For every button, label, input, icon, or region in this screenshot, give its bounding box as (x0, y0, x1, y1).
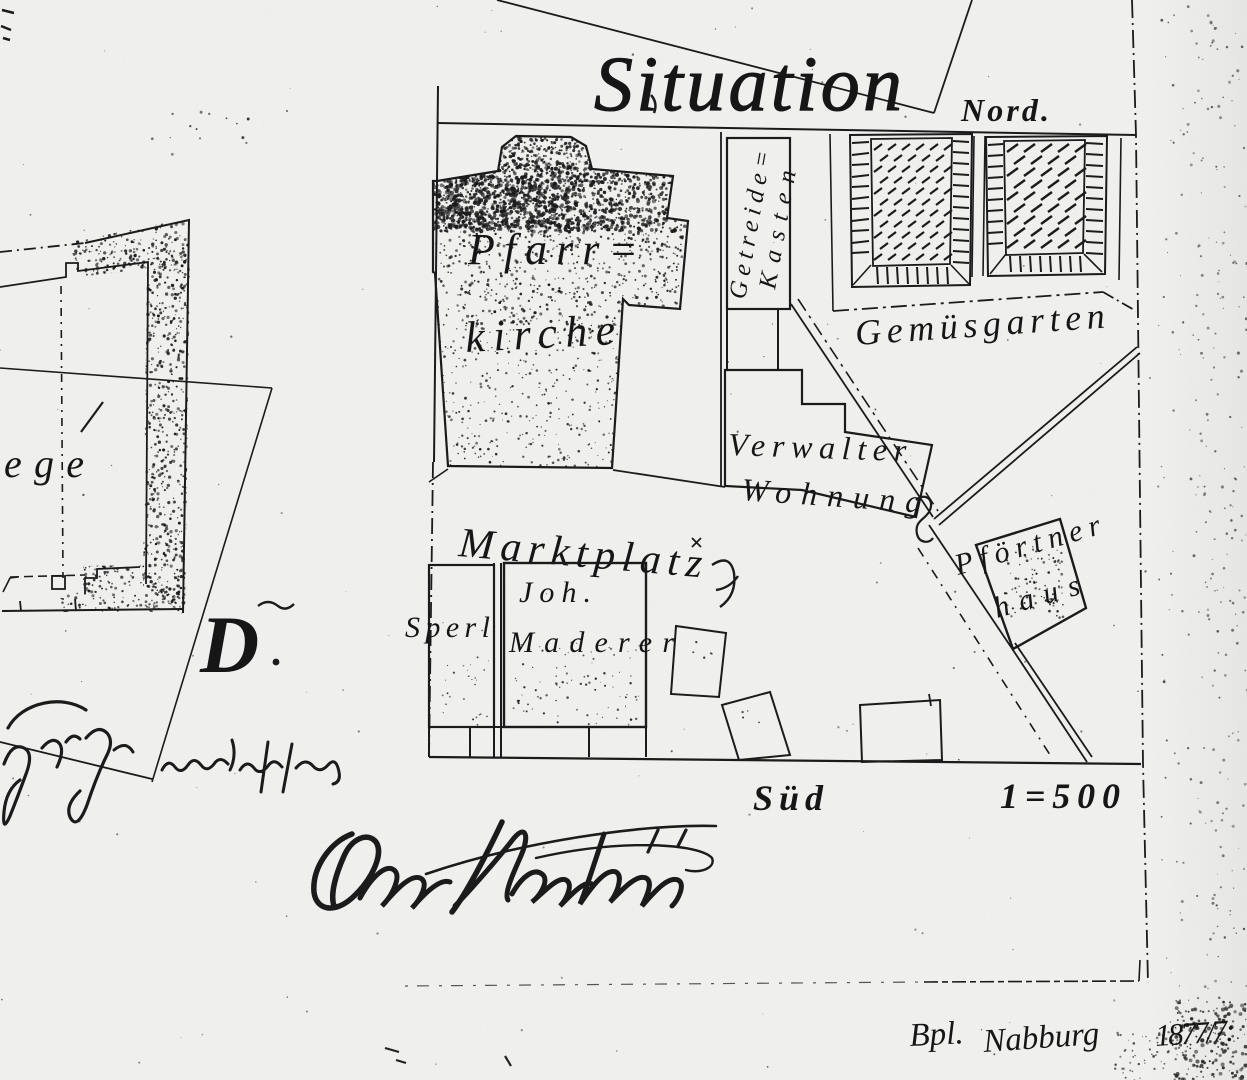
svg-text:Süd: Süd (753, 778, 824, 818)
svg-text:Situation: Situation (594, 40, 902, 127)
